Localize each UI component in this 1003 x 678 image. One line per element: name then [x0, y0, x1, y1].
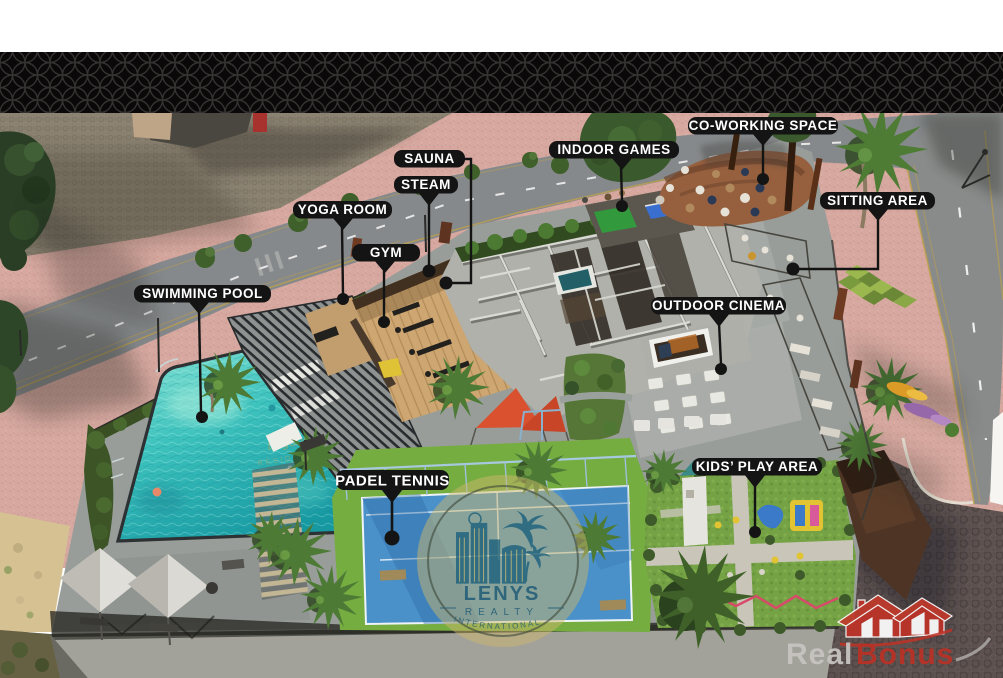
svg-text:INDOOR GAMES: INDOOR GAMES [557, 142, 670, 157]
svg-text:CO-WORKING SPACE: CO-WORKING SPACE [689, 118, 838, 133]
svg-text:KIDS’ PLAY AREA: KIDS’ PLAY AREA [696, 459, 819, 474]
svg-text:SWIMMING POOL: SWIMMING POOL [142, 286, 263, 301]
svg-text:OUTDOOR CINEMA: OUTDOOR CINEMA [652, 298, 785, 313]
svg-text:Real: Real [786, 638, 853, 671]
svg-text:GYM: GYM [370, 245, 402, 260]
svg-text:LENYS: LENYS [464, 583, 541, 605]
svg-text:REALTY: REALTY [465, 607, 539, 618]
svg-text:SITTING AREA: SITTING AREA [827, 193, 928, 208]
svg-text:Bonus: Bonus [856, 638, 954, 671]
svg-text:YOGA ROOM: YOGA ROOM [298, 202, 388, 217]
svg-text:SAUNA: SAUNA [404, 151, 455, 166]
svg-text:STEAM: STEAM [401, 177, 451, 192]
svg-text:PADEL TENNIS: PADEL TENNIS [335, 473, 450, 490]
